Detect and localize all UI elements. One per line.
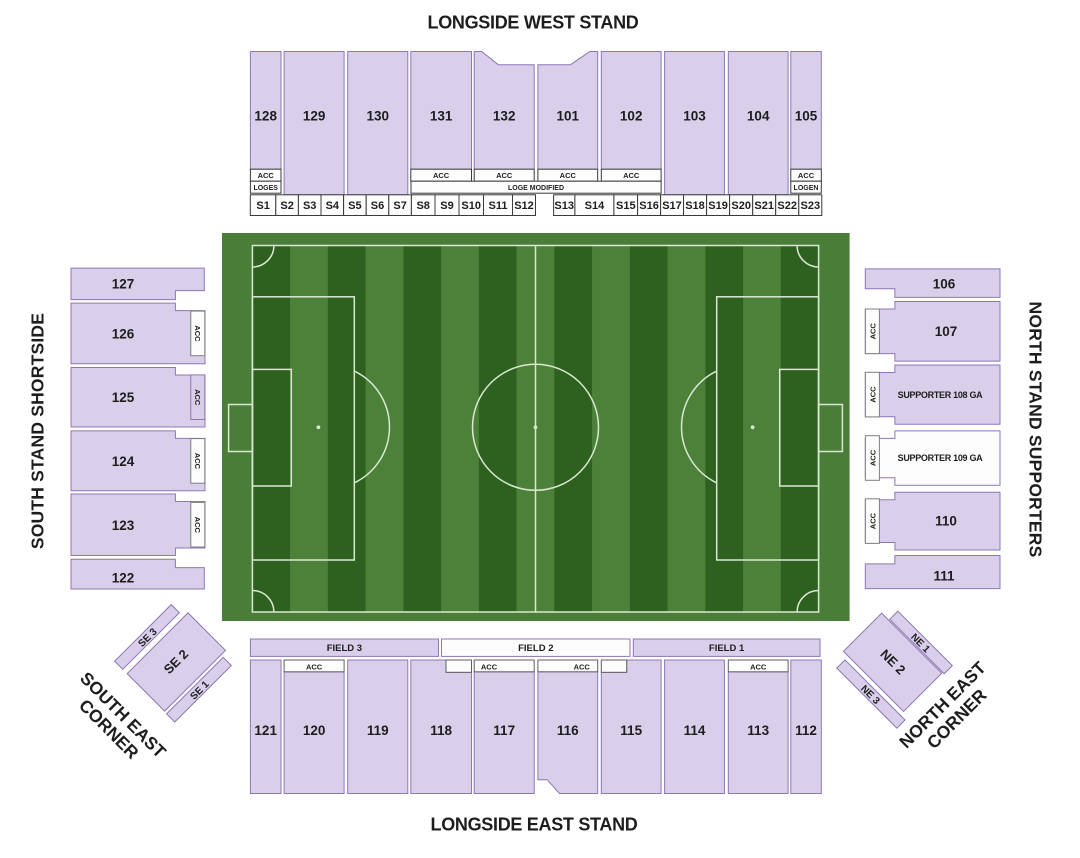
svg-text:NORTH STAND SUPPORTERS: NORTH STAND SUPPORTERS — [1026, 302, 1046, 558]
svg-text:ACC: ACC — [193, 453, 202, 470]
svg-text:130: 130 — [367, 109, 390, 124]
svg-text:LOGE MODIFIED: LOGE MODIFIED — [508, 185, 564, 192]
svg-text:S4: S4 — [326, 200, 340, 212]
svg-text:ACC: ACC — [560, 171, 577, 180]
svg-text:S3: S3 — [303, 200, 316, 212]
svg-text:ACC: ACC — [868, 323, 877, 340]
svg-text:S13: S13 — [554, 200, 574, 212]
svg-text:S8: S8 — [416, 200, 429, 212]
svg-text:ACC: ACC — [798, 171, 815, 180]
svg-text:S11: S11 — [489, 200, 508, 212]
svg-text:S15: S15 — [616, 200, 636, 212]
svg-text:LONGSIDE WEST STAND: LONGSIDE WEST STAND — [428, 13, 639, 33]
svg-text:LOGES: LOGES — [253, 185, 278, 192]
svg-text:107: 107 — [935, 324, 958, 339]
svg-text:116: 116 — [557, 723, 579, 738]
svg-text:S5: S5 — [348, 200, 361, 212]
svg-text:128: 128 — [254, 109, 277, 124]
svg-text:103: 103 — [683, 109, 706, 124]
svg-text:111: 111 — [933, 569, 955, 584]
svg-text:ACC: ACC — [258, 171, 275, 180]
svg-text:S19: S19 — [708, 200, 728, 212]
svg-text:ACC: ACC — [306, 662, 323, 671]
svg-text:LONGSIDE EAST STAND: LONGSIDE EAST STAND — [431, 815, 638, 835]
svg-text:S17: S17 — [662, 200, 682, 212]
svg-text:118: 118 — [430, 723, 452, 738]
svg-text:125: 125 — [112, 390, 135, 405]
svg-text:S18: S18 — [685, 200, 705, 212]
svg-text:S1: S1 — [256, 200, 269, 212]
svg-text:ACC: ACC — [623, 171, 640, 180]
svg-text:SUPPORTER 108 GA: SUPPORTER 108 GA — [898, 390, 984, 400]
svg-text:FIELD 3: FIELD 3 — [327, 643, 362, 654]
svg-text:106: 106 — [933, 277, 956, 292]
svg-text:ACC: ACC — [193, 517, 202, 534]
svg-text:127: 127 — [112, 277, 135, 292]
svg-text:123: 123 — [112, 518, 135, 533]
svg-text:SUPPORTER 109 GA: SUPPORTER 109 GA — [898, 453, 984, 463]
svg-text:ACC: ACC — [868, 386, 877, 403]
svg-text:ACC: ACC — [496, 171, 513, 180]
svg-text:115: 115 — [620, 723, 642, 738]
svg-text:LOGEN: LOGEN — [794, 185, 819, 192]
svg-text:129: 129 — [303, 109, 326, 124]
svg-text:FIELD 1: FIELD 1 — [709, 643, 745, 654]
svg-text:ACC: ACC — [481, 662, 498, 671]
svg-text:131: 131 — [430, 109, 453, 124]
svg-text:S22: S22 — [777, 200, 797, 212]
svg-text:S7: S7 — [393, 200, 406, 212]
svg-text:FIELD 2: FIELD 2 — [518, 643, 553, 654]
svg-text:S14: S14 — [585, 200, 605, 212]
svg-text:121: 121 — [254, 723, 277, 738]
svg-text:S6: S6 — [371, 200, 384, 212]
svg-text:S9: S9 — [440, 200, 453, 212]
svg-text:ACC: ACC — [574, 662, 591, 671]
svg-text:105: 105 — [795, 109, 818, 124]
svg-text:S20: S20 — [731, 200, 751, 212]
svg-text:ACC: ACC — [750, 662, 767, 671]
svg-text:ACC: ACC — [868, 449, 877, 466]
svg-text:114: 114 — [684, 723, 706, 738]
svg-text:101: 101 — [557, 109, 580, 124]
svg-text:104: 104 — [747, 109, 770, 124]
svg-text:S10: S10 — [461, 200, 481, 212]
svg-text:126: 126 — [112, 326, 135, 341]
svg-text:ACC: ACC — [433, 171, 450, 180]
svg-text:ACC: ACC — [868, 512, 877, 529]
svg-text:112: 112 — [795, 723, 817, 738]
svg-text:S12: S12 — [514, 200, 534, 212]
svg-text:122: 122 — [112, 571, 135, 586]
svg-text:119: 119 — [367, 723, 389, 738]
svg-text:SOUTH STAND SHORTSIDE: SOUTH STAND SHORTSIDE — [28, 313, 48, 549]
svg-text:102: 102 — [620, 109, 643, 124]
svg-text:113: 113 — [747, 723, 769, 738]
svg-text:117: 117 — [493, 723, 515, 738]
svg-text:S2: S2 — [280, 200, 293, 212]
svg-text:ACC: ACC — [193, 389, 202, 406]
svg-text:120: 120 — [303, 723, 326, 738]
svg-text:S23: S23 — [801, 200, 821, 212]
svg-text:S16: S16 — [639, 200, 659, 212]
svg-text:132: 132 — [493, 109, 516, 124]
svg-text:124: 124 — [112, 454, 135, 469]
svg-text:110: 110 — [935, 514, 957, 529]
svg-text:ACC: ACC — [193, 325, 202, 342]
svg-text:S21: S21 — [754, 200, 774, 212]
